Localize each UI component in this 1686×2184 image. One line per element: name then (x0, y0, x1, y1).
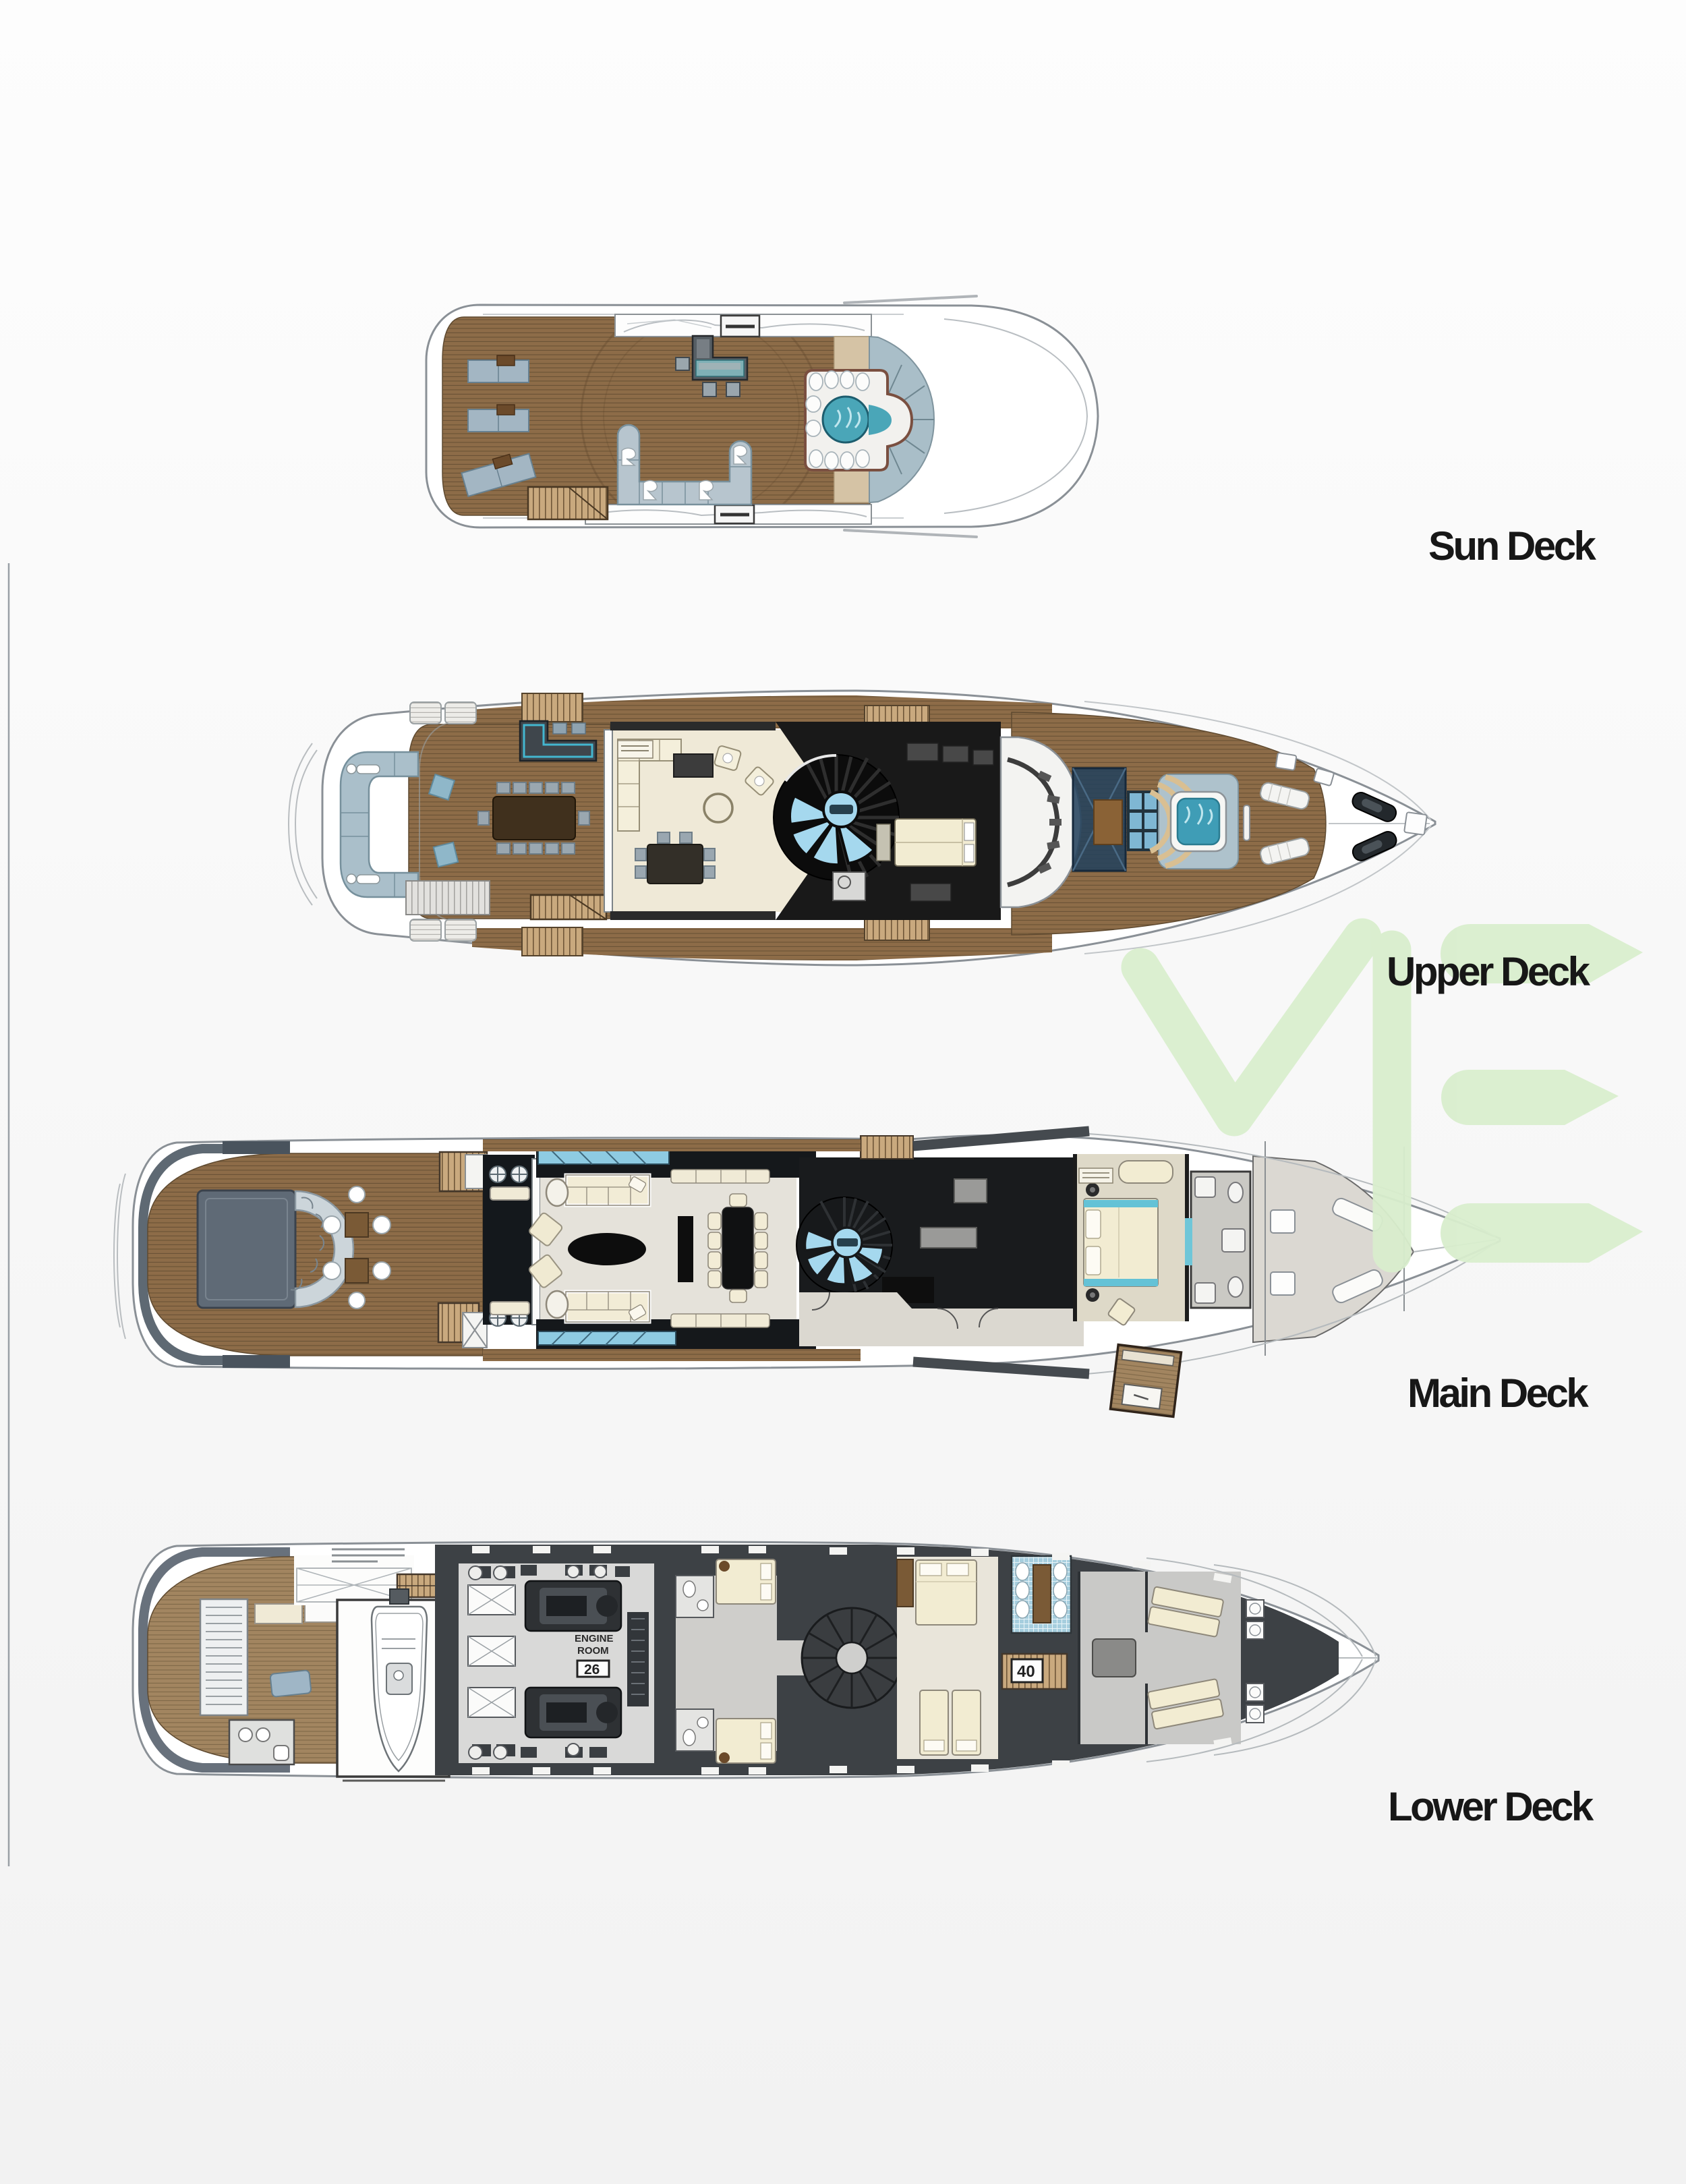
svg-text:40: 40 (1017, 1663, 1035, 1681)
svg-text:Upper Deck: Upper Deck (1387, 949, 1591, 994)
svg-text:Lower Deck: Lower Deck (1388, 1784, 1594, 1829)
svg-text:ENGINE: ENGINE (575, 1633, 614, 1644)
svg-text:Main Deck: Main Deck (1407, 1371, 1589, 1416)
svg-text:Sun Deck: Sun Deck (1428, 523, 1597, 569)
svg-text:ROOM: ROOM (577, 1645, 609, 1657)
svg-text:26: 26 (584, 1662, 600, 1677)
